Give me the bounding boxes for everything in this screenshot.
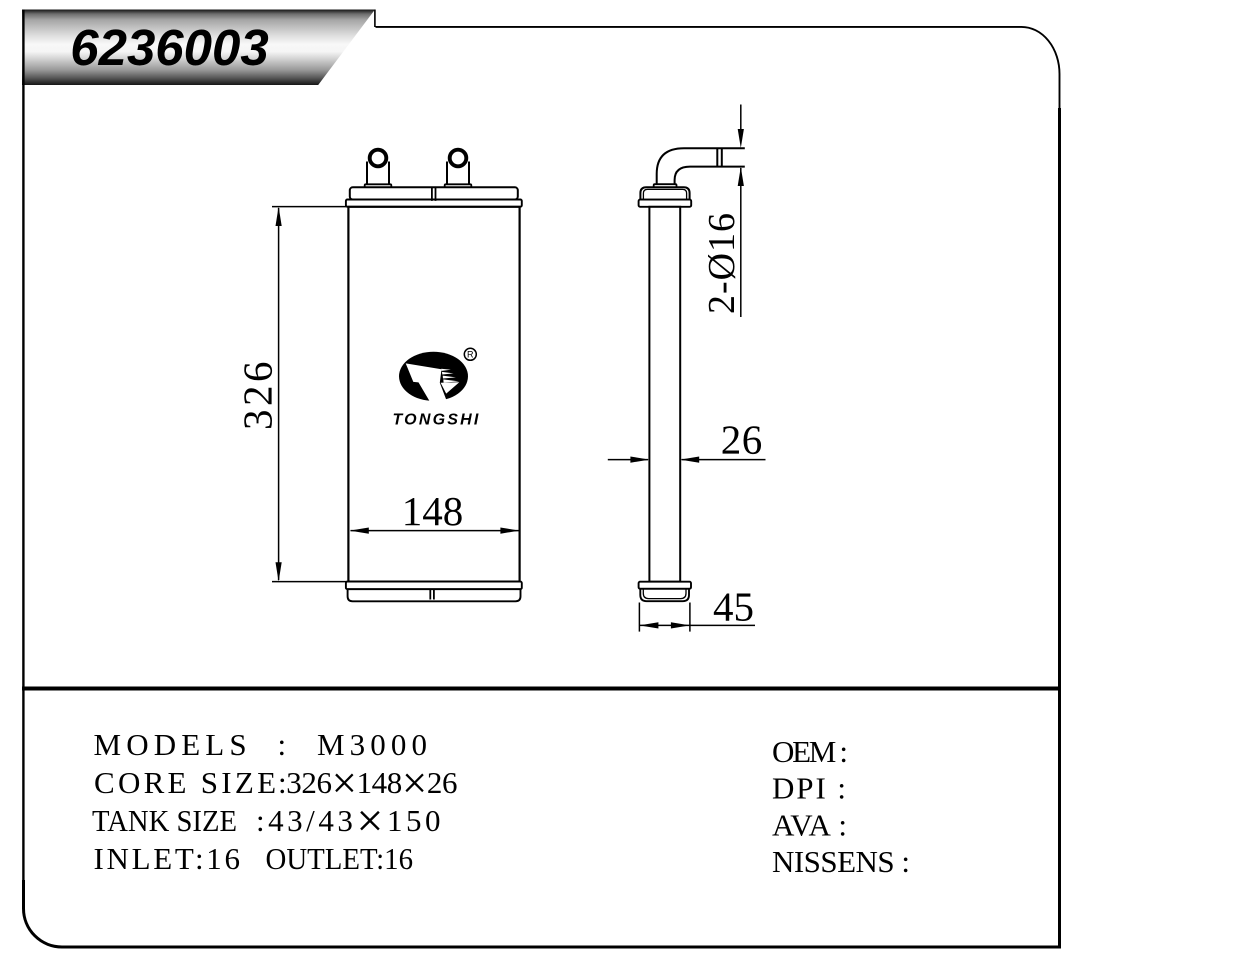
svg-text:DPI :: DPI :: [772, 771, 846, 806]
svg-text:INLET:16: INLET:16: [94, 841, 241, 876]
svg-text:148: 148: [402, 488, 464, 534]
svg-text:OUTLET:16: OUTLET:16: [266, 841, 414, 876]
svg-text:TANK SIZE: TANK SIZE: [92, 803, 237, 838]
svg-text:26: 26: [721, 417, 763, 463]
svg-text:R: R: [467, 350, 474, 360]
svg-text:45: 45: [713, 584, 754, 630]
svg-text:CORE SIZE: CORE SIZE: [94, 765, 276, 800]
svg-text:TONGSHI: TONGSHI: [392, 412, 480, 429]
svg-text:NISSENS :: NISSENS :: [772, 844, 910, 879]
svg-text:MODELS : M3000: MODELS : M3000: [94, 727, 428, 762]
svg-text:2-Ø16: 2-Ø16: [701, 212, 743, 314]
svg-text:OEM :: OEM :: [772, 734, 848, 769]
svg-text:AVA :: AVA :: [772, 807, 847, 842]
svg-text:6236003: 6236003: [70, 19, 269, 76]
svg-text::43/43×150: :43/43×150: [256, 795, 441, 848]
svg-text:326: 326: [235, 358, 281, 430]
